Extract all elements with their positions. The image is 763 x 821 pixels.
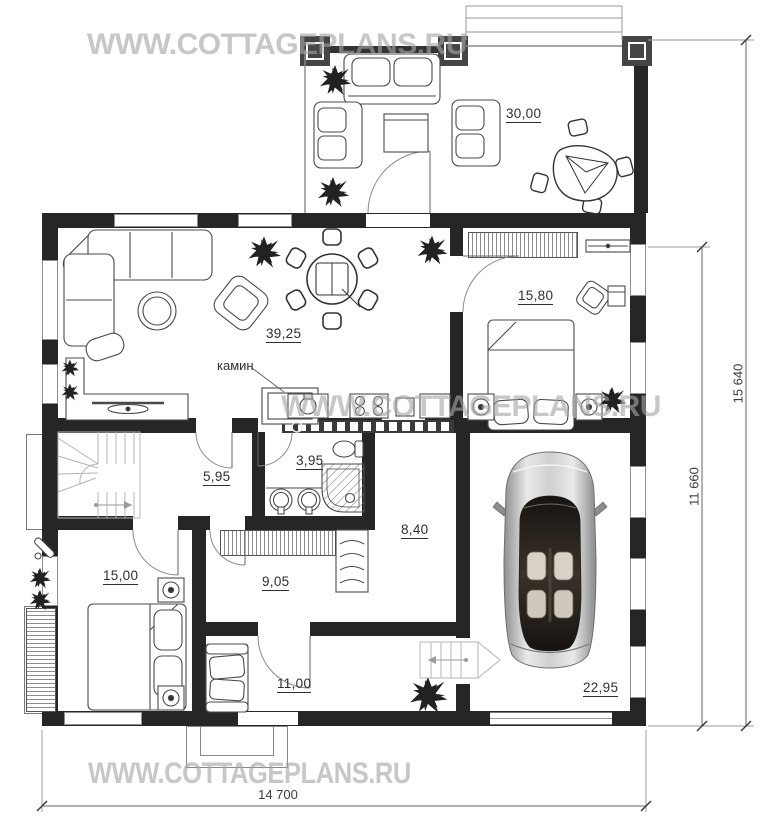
plant-hall <box>408 675 449 716</box>
living-armchair <box>210 272 272 334</box>
dimension-height-total: 15 640 <box>731 352 746 416</box>
tv-unit <box>66 358 188 420</box>
dressing-closet <box>336 530 368 592</box>
car-top-view <box>493 452 607 668</box>
room-area-entrance-hall: 11,00 <box>277 676 311 693</box>
room-area-bathroom: 3,95 <box>296 453 323 470</box>
terrace-sofa-left <box>314 102 362 168</box>
watermark-bottom: WWW.COTTAGEPLANS.RU <box>88 757 411 791</box>
plan-canvas: 30,00 39,25 15,80 5,95 3,95 8,40 9,05 15… <box>0 0 763 821</box>
plant-living-1 <box>246 234 282 270</box>
watermark-middle: WWW.COTTAGEPLANS.RU <box>281 390 661 424</box>
bathroom-fixtures <box>266 441 364 514</box>
terrace-steps <box>466 6 622 40</box>
bedroom1-furniture <box>33 537 186 710</box>
dimension-height-main: 11 660 <box>687 455 702 519</box>
plant-bedroom1-b <box>29 589 53 612</box>
floor-plan-page: { "watermark": { "text": "WWW.COTTAGEPLA… <box>0 0 763 821</box>
room-area-bedroom-bottom: 15,00 <box>103 568 138 585</box>
dining-table-set <box>285 229 380 329</box>
plant-bedroom1-a <box>29 567 53 590</box>
terrace-dining-set <box>530 118 634 214</box>
room-area-garage: 22,95 <box>583 680 618 697</box>
plant-living-2 <box>416 234 449 267</box>
garage-entry-steps <box>420 642 500 678</box>
hall-bench <box>206 644 248 712</box>
room-area-terrace: 30,00 <box>506 106 541 123</box>
main-staircase <box>58 432 140 518</box>
room-area-corridor: 8,40 <box>401 522 428 539</box>
room-area-living: 39,25 <box>266 326 301 343</box>
living-round-table <box>138 292 176 330</box>
terrace-coffee-table <box>384 114 428 152</box>
room-area-stair-hall: 5,95 <box>203 469 230 486</box>
living-corner-sofa <box>60 227 212 363</box>
fireplace-label: камин <box>217 358 254 373</box>
terrace-sofa-right <box>452 100 500 166</box>
watermark-top: WWW.COTTAGEPLANS.RU <box>87 28 467 62</box>
plant-terrace-2 <box>316 175 351 209</box>
room-area-bedroom-top: 15,80 <box>518 288 553 305</box>
room-area-dressing: 9,05 <box>262 574 289 591</box>
